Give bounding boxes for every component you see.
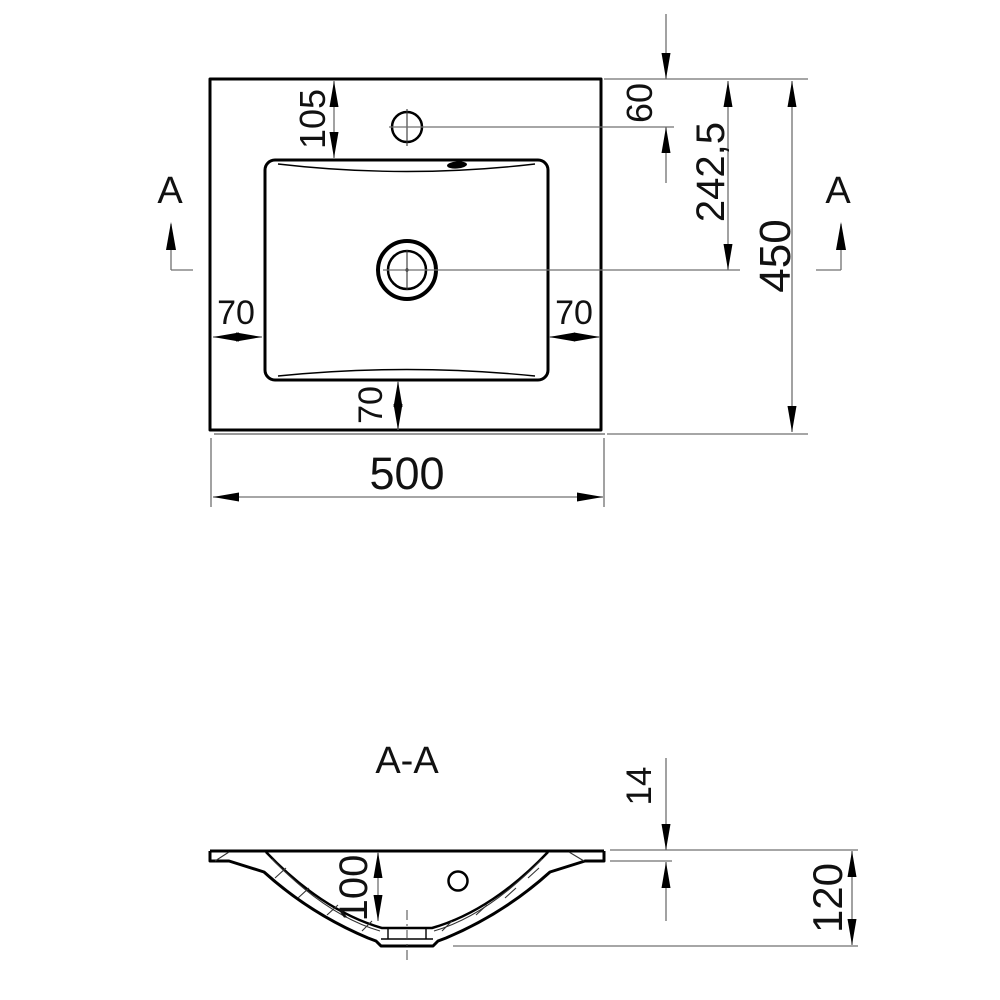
dim-450: 450 [751, 81, 800, 432]
dim-70-bottom-label: 70 [352, 386, 390, 424]
dim-60-label: 60 [619, 83, 660, 123]
basin-rim-top-line [278, 164, 535, 172]
dim-100: 100 [332, 852, 383, 921]
dim-120: 120 [804, 851, 857, 945]
dim-105-label: 105 [292, 89, 333, 149]
arrow-right-icon [236, 333, 262, 342]
section-marker-a-left: A [157, 170, 193, 270]
dim-14-label: 14 [620, 767, 659, 806]
basin-rim-bottom-line [278, 370, 535, 377]
dim-242-5-label: 242,5 [689, 122, 733, 222]
arrow-up-icon [724, 81, 733, 107]
technical-drawing: 105 60 242,5 450 70 [0, 0, 1000, 1000]
arrow-down-icon [394, 404, 403, 430]
arrow-right-icon [574, 333, 600, 342]
dim-100-label: 100 [332, 855, 376, 922]
dim-450-label: 450 [751, 219, 800, 292]
dim-70-left: 70 [213, 294, 262, 342]
dim-105: 105 [292, 81, 339, 158]
section-marker-a-right: A [816, 170, 851, 270]
arrow-down-icon [788, 406, 797, 432]
dim-70-right: 70 [549, 294, 600, 342]
arrow-down-icon [662, 824, 671, 850]
section-title: A-A [375, 740, 439, 782]
arrow-up-icon [788, 81, 797, 107]
arrow-up-icon [836, 222, 846, 250]
section-overflow-hole [449, 872, 468, 891]
section-basin-inner-offset-line [272, 859, 542, 931]
drawing-sheet: 105 60 242,5 450 70 [0, 0, 1000, 1000]
arrow-left-icon [549, 333, 575, 342]
arrow-up-icon [662, 862, 671, 888]
arrow-left-icon [213, 493, 239, 502]
dim-60: 60 [619, 14, 671, 183]
arrow-left-icon [213, 333, 239, 342]
overflow-slot [447, 161, 467, 169]
arrow-up-icon [394, 381, 403, 407]
arrow-up-icon [166, 222, 176, 250]
dim-14: 14 [620, 758, 671, 921]
dim-70-bottom: 70 [352, 381, 403, 430]
arrow-down-icon [662, 53, 671, 79]
dim-500: 500 [213, 448, 603, 502]
dim-120-label: 120 [804, 863, 851, 933]
section-marker-a-left-label: A [157, 170, 183, 212]
dim-500-label: 500 [369, 448, 444, 499]
arrow-right-icon [577, 493, 603, 502]
dim-242-5: 242,5 [689, 81, 733, 270]
arrow-up-icon [662, 127, 671, 153]
section-view: A-A 14 100 [210, 740, 858, 962]
dim-70-right-label: 70 [555, 294, 593, 332]
section-marker-a-right-label: A [825, 170, 851, 212]
arrow-down-icon [724, 244, 733, 270]
top-view: 105 60 242,5 450 70 [157, 14, 851, 507]
dim-70-left-label: 70 [217, 294, 255, 332]
